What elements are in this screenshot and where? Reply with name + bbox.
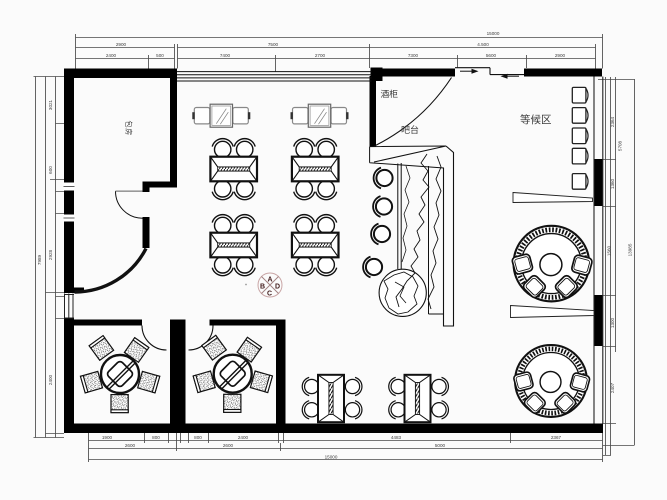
svg-text:2400: 2400 [238,435,249,440]
svg-text:2364: 2364 [610,116,615,127]
svg-text:1360: 1360 [610,178,615,189]
svg-text:5600: 5600 [486,53,497,58]
svg-text:7300: 7300 [408,53,419,58]
svg-text:3021: 3021 [48,99,53,110]
svg-text:1300: 1300 [610,317,615,328]
svg-text:2900: 2900 [116,42,127,47]
svg-text:等候区: 等候区 [520,113,552,126]
svg-text:15000: 15000 [487,31,500,36]
svg-text:4.500: 4.500 [477,42,489,47]
svg-text:A: A [267,277,272,284]
svg-text:7500: 7500 [268,42,279,47]
svg-text:13985: 13985 [628,243,633,256]
svg-text:2400: 2400 [106,53,117,58]
svg-text:吧台: 吧台 [401,124,419,135]
svg-text:2928: 2928 [48,249,53,260]
svg-text:2600: 2600 [223,443,234,448]
svg-text:800: 800 [194,435,202,440]
svg-text:500: 500 [156,53,164,58]
svg-text:800: 800 [152,435,160,440]
svg-text:600: 600 [48,166,53,174]
svg-text:2700: 2700 [315,53,326,58]
svg-text:D: D [275,284,280,291]
svg-text:1900: 1900 [102,435,113,440]
svg-text:5000: 5000 [435,443,446,448]
svg-text:包房: 包房 [125,121,134,137]
svg-text:2367: 2367 [551,435,562,440]
svg-text:2407: 2407 [610,382,615,393]
svg-text:4483: 4483 [391,435,402,440]
svg-text:B: B [260,284,265,291]
svg-text:7400: 7400 [220,53,231,58]
svg-text:5708: 5708 [618,140,623,151]
svg-text:7989: 7989 [37,254,42,265]
svg-text:2600: 2600 [125,443,136,448]
svg-text:15000: 15000 [325,454,338,459]
svg-text:2900: 2900 [555,53,566,58]
svg-text:酒柜: 酒柜 [381,88,399,99]
svg-text:1560: 1560 [607,245,612,256]
svg-text:C: C [267,291,272,298]
svg-text:2400: 2400 [48,374,53,385]
